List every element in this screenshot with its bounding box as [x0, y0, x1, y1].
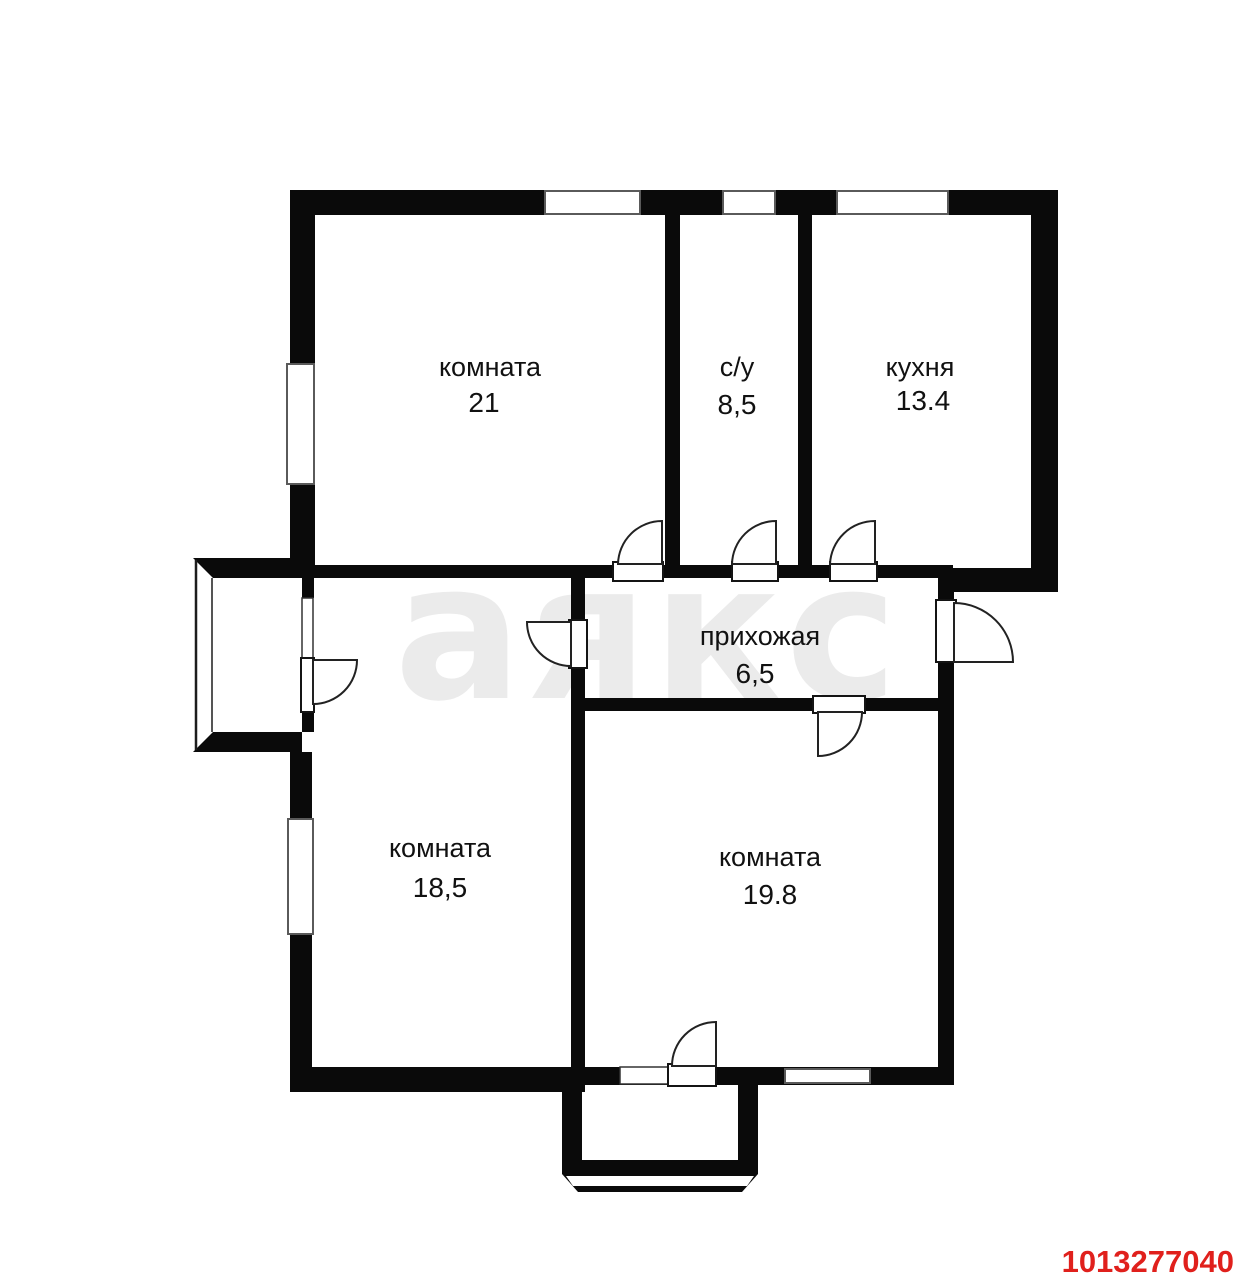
wall-right-kitchen	[1031, 190, 1058, 592]
floor-plan-page: аякс	[0, 0, 1244, 1280]
window-balcony-room198	[620, 1067, 668, 1084]
area-bathroom: 8,5	[718, 389, 757, 420]
label-room-bottom-right: комната	[719, 842, 822, 872]
wall-bottom-room185	[290, 1067, 585, 1092]
label-bathroom: с/у	[720, 352, 755, 382]
label-room-top-left: комната	[439, 352, 542, 382]
window-room21-left	[287, 364, 314, 484]
listing-id: 1013277040	[1062, 1244, 1234, 1279]
wall-room21-bathroom	[665, 215, 680, 578]
label-room-bottom-left: комната	[389, 833, 492, 863]
door-sill-balcony-198	[668, 1064, 716, 1086]
balcony-bottom-rail	[562, 1160, 758, 1174]
wall-kitchen-bottom	[938, 568, 1058, 592]
area-kitchen: 13.4	[896, 385, 951, 416]
window-room21-top	[545, 191, 640, 214]
door-sill-room198	[813, 696, 865, 713]
window-bathroom-top	[723, 191, 775, 214]
label-kitchen: кухня	[886, 352, 955, 382]
window-kitchen-top	[837, 191, 948, 214]
area-room-bottom-left: 18,5	[413, 872, 468, 903]
window-room198-bottom	[785, 1069, 870, 1083]
area-room-bottom-right: 19.8	[743, 879, 798, 910]
wall-hallway-bottom	[585, 698, 938, 711]
balcony-bottom-glazing	[566, 1176, 754, 1186]
window-room185-left	[288, 819, 313, 934]
wall-balcony-strip-top	[302, 578, 314, 598]
label-hallway: прихожая	[700, 621, 820, 651]
window-balcony-room185	[302, 598, 313, 660]
wall-balcony-strip-bottom	[302, 712, 314, 732]
floor-plan-svg: аякс	[0, 0, 1244, 1280]
area-hallway: 6,5	[736, 658, 775, 689]
area-room-top-left: 21	[468, 387, 499, 418]
wall-bathroom-kitchen	[798, 215, 812, 578]
